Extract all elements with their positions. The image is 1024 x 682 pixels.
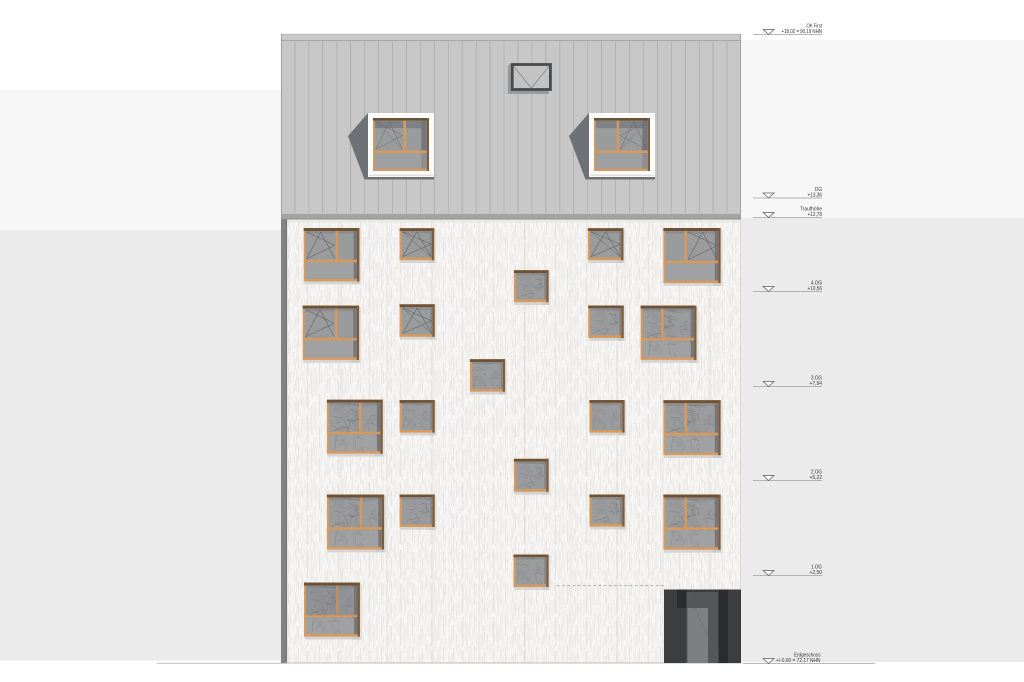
svg-text:+5,22: +5,22: [810, 475, 823, 481]
svg-text:+13,36: +13,36: [808, 193, 823, 199]
svg-text:+2,50: +2,50: [810, 570, 823, 576]
svg-text:+18,02 = 90,19 NHN: +18,02 = 90,19 NHN: [782, 29, 823, 35]
svg-text:+7,94: +7,94: [810, 381, 823, 387]
svg-text:+10,56: +10,56: [808, 286, 823, 292]
svg-text:+12,78: +12,78: [808, 212, 823, 218]
svg-text:+/-0,00 = 72,17 NHN: +/-0,00 = 72,17 NHN: [776, 658, 821, 664]
